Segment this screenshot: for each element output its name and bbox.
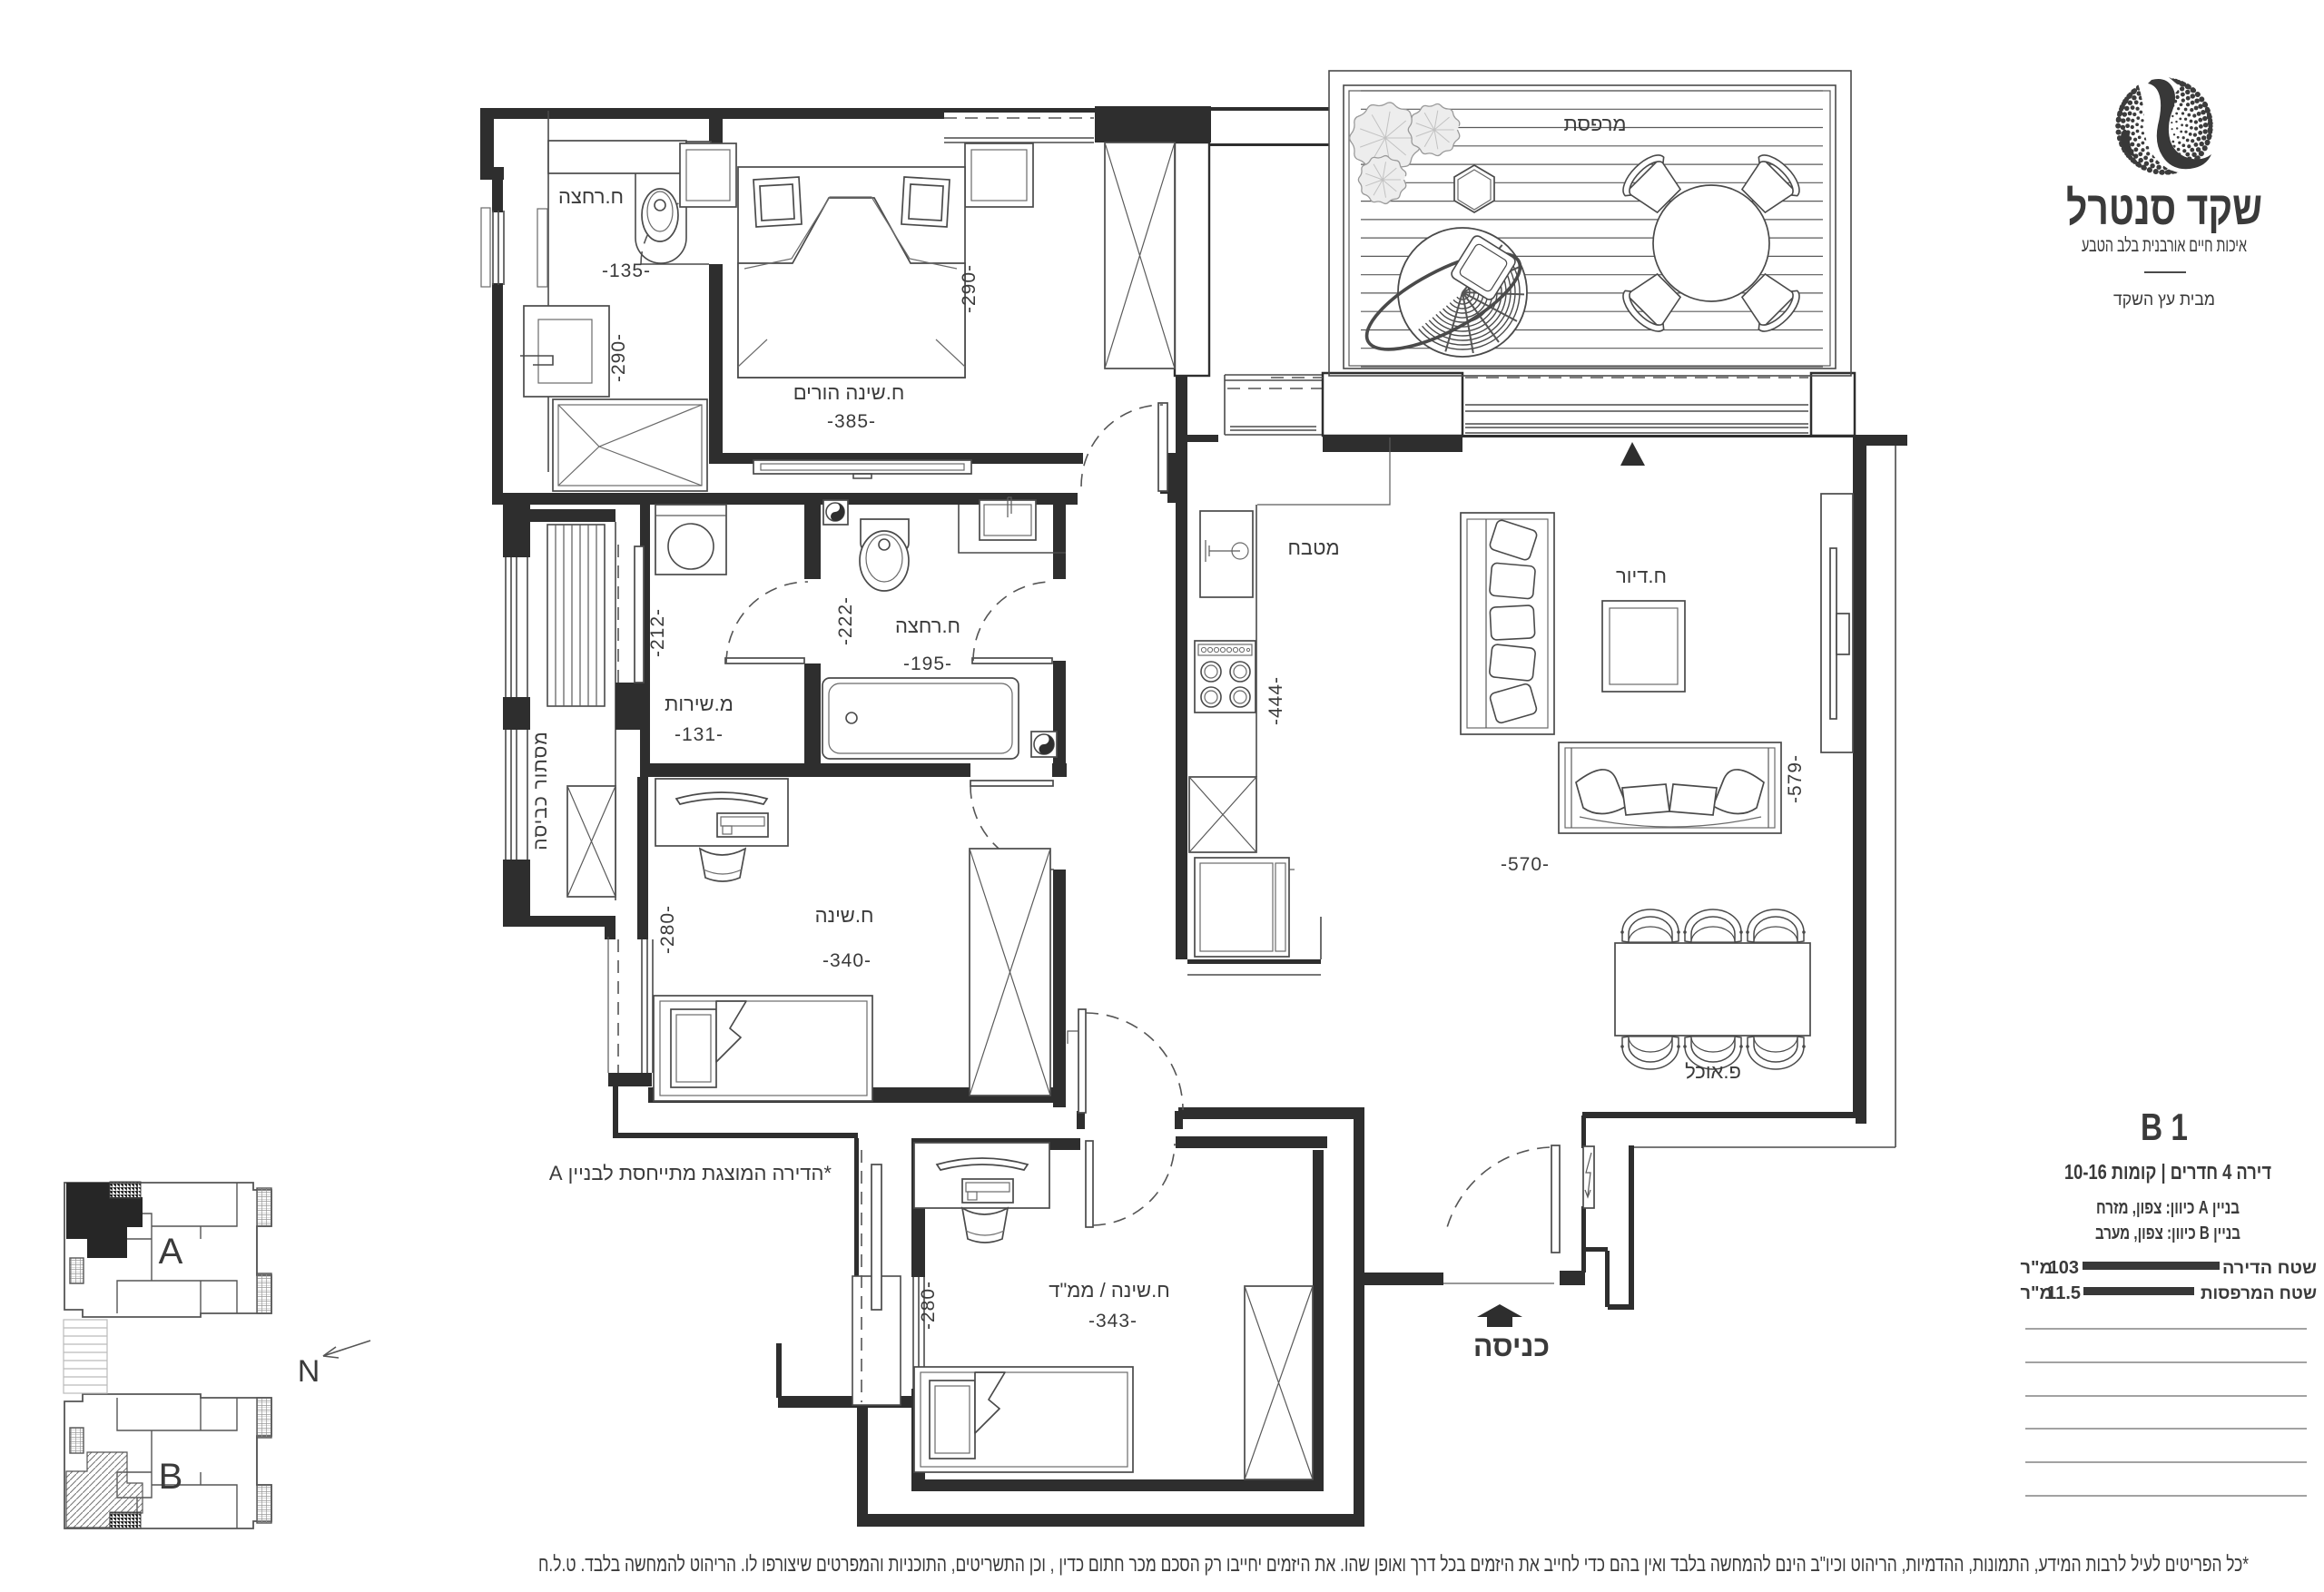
svg-text:מ.שירות: מ.שירות (665, 693, 734, 715)
svg-text:B 1: B 1 (2141, 1106, 2188, 1148)
svg-text:מטבח: מטבח (1287, 536, 1339, 559)
svg-text:N: N (298, 1354, 320, 1389)
svg-text:בניין A כיוון: צפון, מזרח: בניין A כיוון: צפון, מזרח (2096, 1198, 2240, 1218)
svg-text:ח.שינה / ממ"ד: ח.שינה / ממ"ד (1049, 1279, 1169, 1302)
svg-text:*כל הפריטים לעיל לרבות המידע,: *כל הפריטים לעיל לרבות המידע, התמונות, ה… (538, 1552, 2249, 1576)
svg-text:-290-: -290- (608, 333, 629, 382)
svg-text:ח.רחצה: ח.רחצה (558, 185, 624, 208)
svg-text:פ.אוכל: פ.אוכל (1685, 1060, 1741, 1083)
svg-text:-280-: -280- (918, 1281, 939, 1330)
svg-text:שטח המרפסות: שטח המרפסות (2201, 1284, 2317, 1303)
svg-text:ח.דיור: ח.דיור (1616, 565, 1667, 587)
svg-text:-222-: -222- (835, 596, 856, 645)
svg-text:מ"ר: מ"ר (2020, 1283, 2053, 1303)
svg-text:ח.רחצה: ח.רחצה (895, 614, 960, 637)
svg-text:דירה 4 חדרים | קומות 10-16: דירה 4 חדרים | קומות 10-16 (2064, 1160, 2271, 1184)
svg-text:-135-: -135- (602, 260, 651, 281)
svg-text:איכות חיים אורבנית בלב הטבע: איכות חיים אורבנית בלב הטבע (2082, 235, 2247, 256)
svg-text:*הדירה המוצגת מתייחסת לבניין A: *הדירה המוצגת מתייחסת לבניין A (549, 1162, 832, 1184)
svg-text:מרפסת: מרפסת (1563, 113, 1626, 135)
svg-text:-340-: -340- (822, 950, 871, 971)
svg-text:-131-: -131- (675, 724, 724, 745)
svg-text:ח.שינה הורים: ח.שינה הורים (793, 381, 905, 404)
svg-text:103: 103 (2049, 1258, 2079, 1278)
svg-text:מבית עץ השקד: מבית עץ השקד (2113, 290, 2215, 310)
svg-text:-280-: -280- (657, 905, 678, 954)
svg-text:מסתור כביסה: מסתור כביסה (530, 731, 551, 850)
svg-text:שטח הדירה: שטח הדירה (2222, 1259, 2317, 1278)
svg-text:ח.שינה: ח.שינה (815, 904, 874, 927)
svg-text:-570-: -570- (1501, 854, 1550, 875)
svg-text:A: A (159, 1232, 183, 1272)
svg-text:מ"ר: מ"ר (2020, 1258, 2053, 1278)
svg-text:-290-: -290- (959, 264, 980, 313)
svg-text:-444-: -444- (1265, 676, 1286, 725)
svg-text:בניין B כיוון: צפון, מערב: בניין B כיוון: צפון, מערב (2095, 1223, 2240, 1243)
svg-text:כניסה: כניסה (1473, 1330, 1550, 1362)
svg-text:שקד סנטרל: שקד סנטרל (2066, 182, 2262, 235)
svg-text:-212-: -212- (647, 608, 668, 657)
svg-text:-579-: -579- (1785, 754, 1806, 803)
svg-text:-385-: -385- (827, 411, 876, 432)
svg-text:-195-: -195- (903, 654, 952, 674)
svg-text:B: B (159, 1457, 183, 1497)
svg-text:-343-: -343- (1088, 1311, 1137, 1332)
